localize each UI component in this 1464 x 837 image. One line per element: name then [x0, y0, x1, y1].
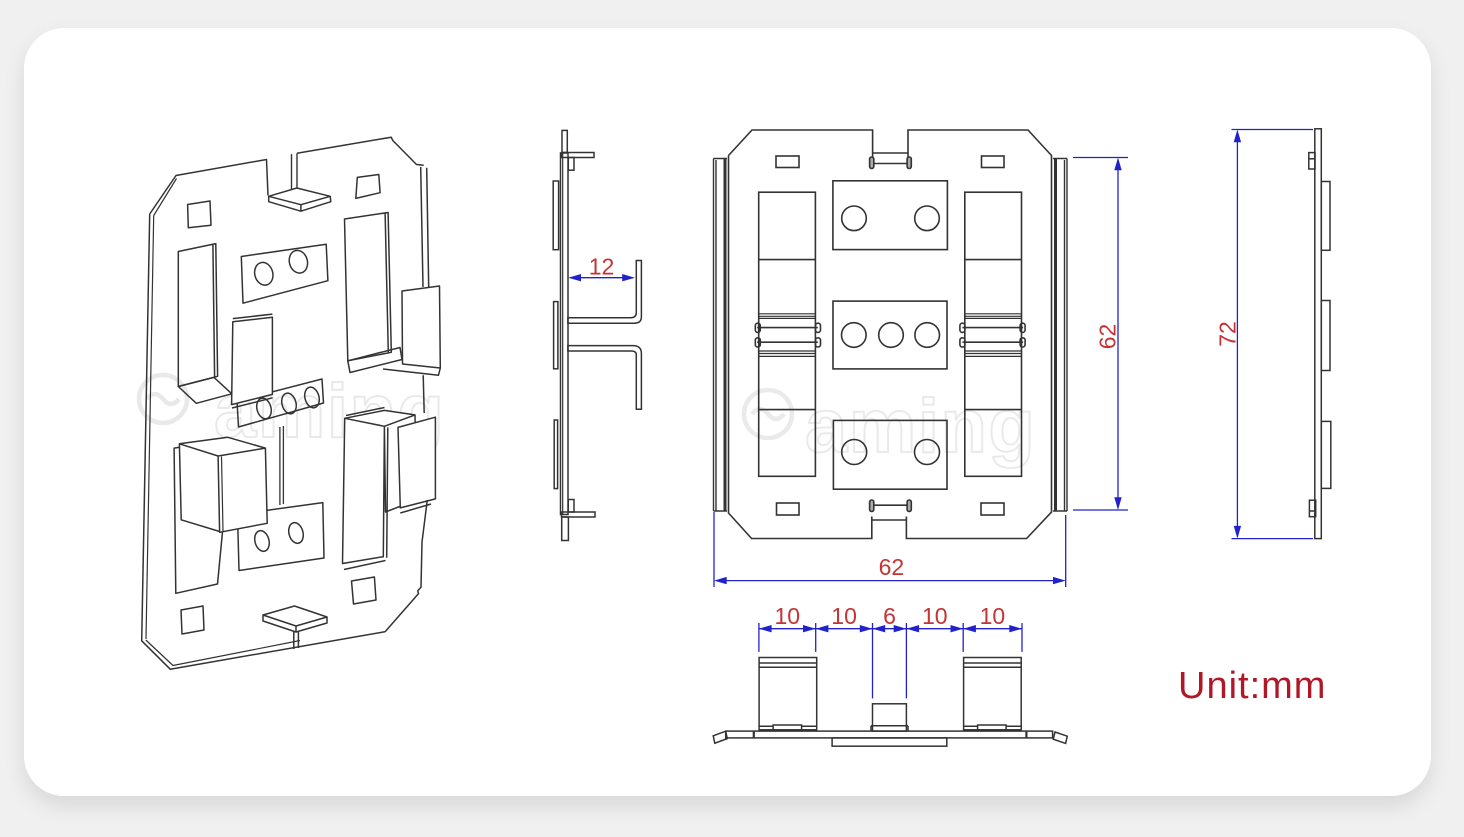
svg-text:10: 10 — [980, 603, 1006, 629]
svg-text:aming: aming — [805, 384, 1036, 469]
svg-text:10: 10 — [831, 603, 857, 629]
svg-text:62: 62 — [879, 554, 905, 580]
svg-text:72: 72 — [1215, 321, 1241, 347]
svg-text:Unit:mm: Unit:mm — [1178, 665, 1326, 707]
svg-text:10: 10 — [775, 603, 801, 629]
svg-text:6: 6 — [883, 603, 896, 629]
svg-text:12: 12 — [589, 254, 615, 280]
svg-text:62: 62 — [1095, 324, 1121, 350]
svg-text:10: 10 — [922, 603, 948, 629]
